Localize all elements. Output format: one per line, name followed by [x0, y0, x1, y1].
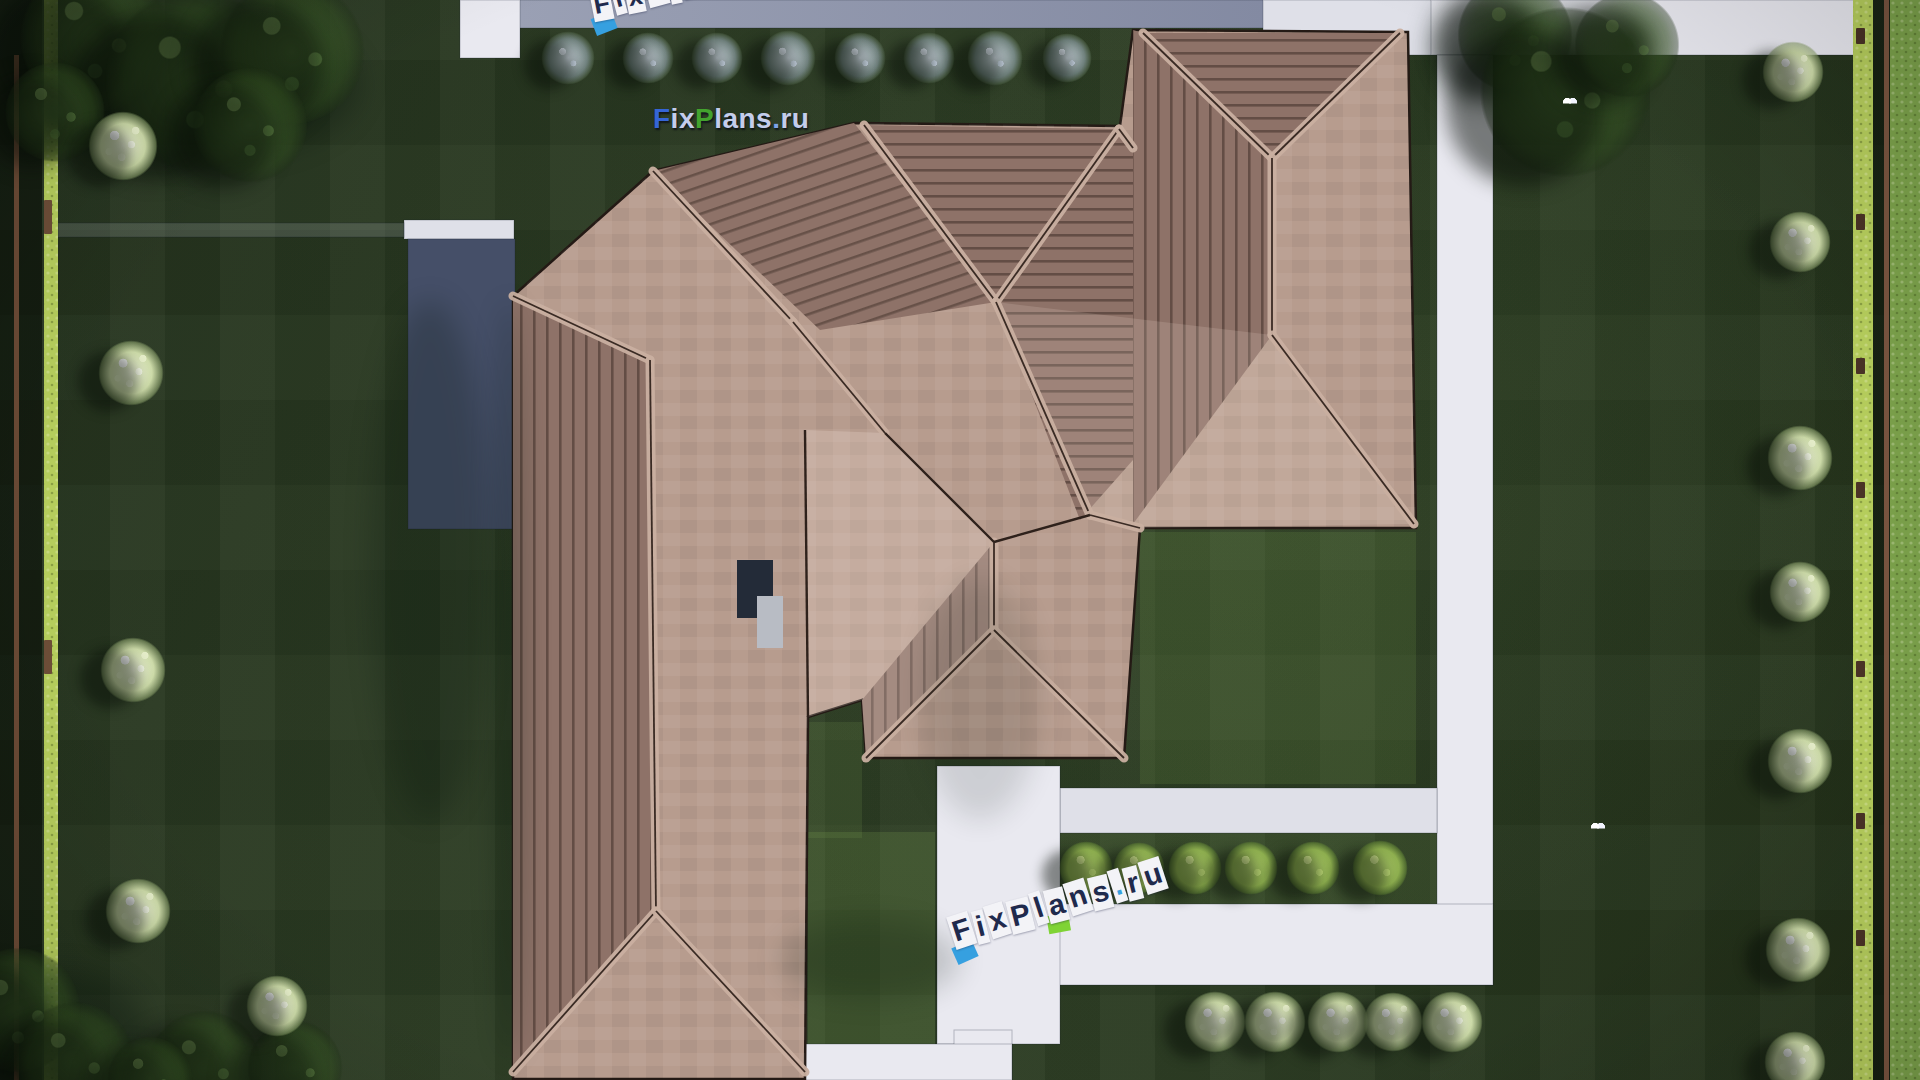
watermark-text-segment: F	[653, 103, 671, 134]
white-flowering-bush	[246, 975, 308, 1037]
pale-blue-bush	[1042, 33, 1092, 83]
pale-blue-bush	[903, 32, 955, 84]
cast-shadow	[780, 920, 960, 1000]
green-shrub	[1352, 840, 1408, 896]
cast-shadow	[920, 580, 1040, 820]
watermark-text-segment: lans	[714, 103, 772, 134]
watermark-text-segment: ix	[671, 103, 695, 134]
pale-blue-bush	[834, 32, 886, 84]
pale-blue-bush	[967, 30, 1023, 86]
fixplans-watermark-logo: FixPlans.ru	[653, 103, 809, 135]
green-shrub	[1286, 841, 1340, 895]
cast-shadow	[370, 300, 490, 820]
site-plan-render: FixPlans.ru FixPlans.ru FixPlans.ru	[0, 0, 1920, 1080]
white-flowering-bush	[1765, 917, 1831, 983]
white-bird	[1563, 97, 1577, 104]
pale-blue-bush	[691, 32, 743, 84]
watermark-text-segment: ru	[780, 103, 809, 134]
cast-shadow	[496, 300, 524, 1060]
white-flowering-bush	[88, 111, 158, 181]
white-flowering-bush	[1421, 991, 1483, 1053]
white-flowering-bush	[105, 878, 171, 944]
pale-blue-bush	[760, 30, 816, 86]
white-flowering-bush	[1769, 211, 1831, 273]
tree-canopy	[193, 68, 308, 183]
white-flowering-bush	[1769, 561, 1831, 623]
watermark-text-segment: P	[695, 103, 714, 134]
chimney-cap	[757, 596, 783, 648]
pale-blue-bush	[541, 31, 595, 85]
pale-blue-bush	[622, 32, 674, 84]
white-flowering-bush	[1762, 41, 1824, 103]
white-flowering-bush	[1767, 425, 1833, 491]
white-bird	[1591, 822, 1605, 829]
white-flowering-bush	[1767, 728, 1833, 794]
white-flowering-bush	[100, 637, 166, 703]
white-flowering-bush	[98, 340, 164, 406]
